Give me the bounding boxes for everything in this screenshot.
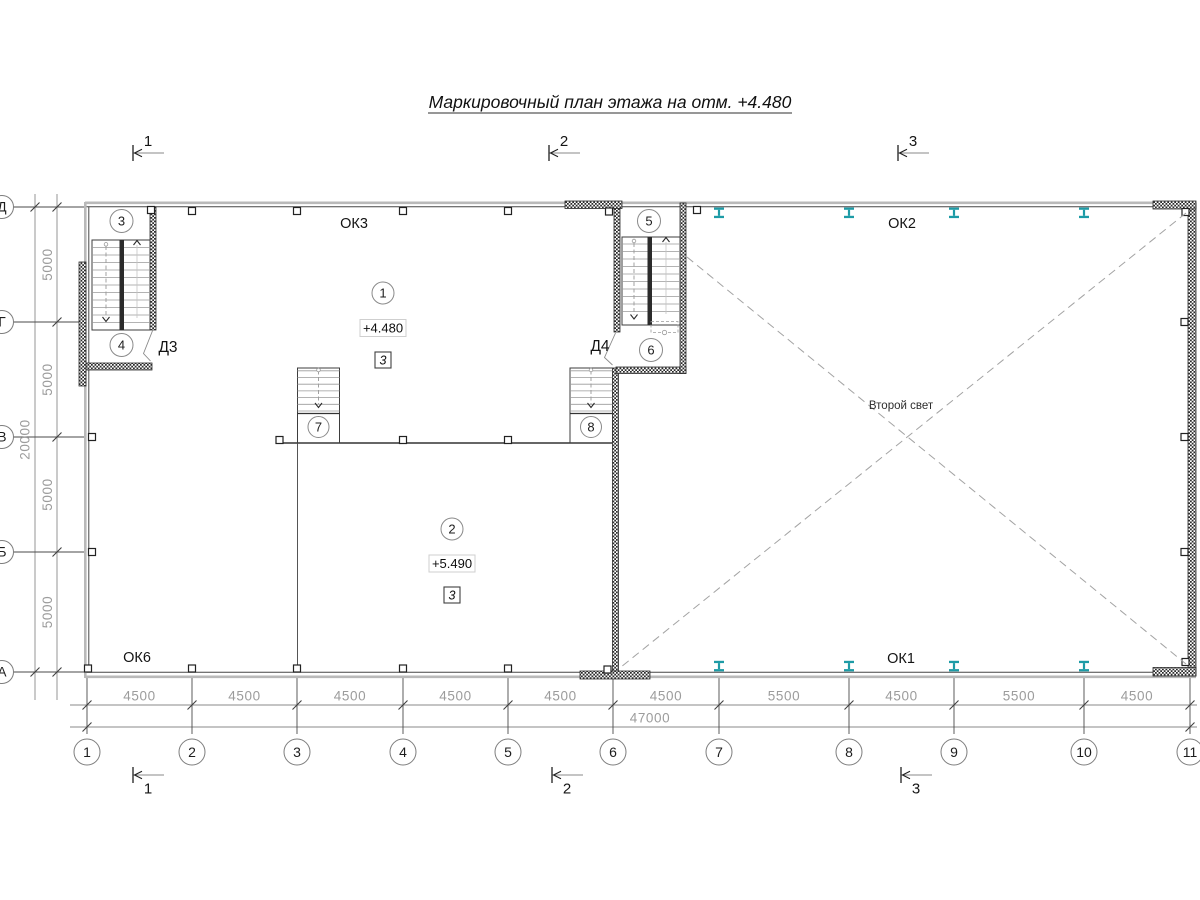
steel-column-flange [844,208,854,210]
dimension-value: 4500 [439,689,471,704]
steel-column-icon [844,661,854,672]
section-mark-label: 1 [144,133,152,150]
void-cross-line [687,257,1186,664]
grid-row-label: В [0,430,7,445]
steel-column-flange [1079,208,1089,210]
column-marker [400,208,407,215]
grid-column-label: 4 [399,744,407,760]
grid-row-label: Б [0,545,7,560]
dimension-value: 5000 [40,478,55,510]
column-marker [148,207,155,214]
window-label: ОК3 [340,216,368,232]
section-mark-label: 3 [909,133,917,150]
column-marker [189,208,196,215]
stair-start-marker [104,243,108,247]
column-marker [694,207,701,214]
load-bearing-wall [580,671,650,679]
void-cross-line [621,213,1186,667]
steel-column-icon [949,661,959,672]
dimension-value: 4500 [885,689,917,704]
load-bearing-wall [614,208,620,332]
column-marker [505,208,512,215]
room-number-label: 1 [379,286,386,301]
column-marker [1181,434,1188,441]
grid-column-label: 1 [83,744,91,760]
type-mark-label: 3 [380,353,387,367]
column-marker [505,665,512,672]
steel-column-flange [714,669,724,671]
steel-column-flange [949,208,959,210]
grid-column-label: 8 [845,744,853,760]
window-label: ОК6 [123,650,151,666]
column-marker [1182,209,1189,216]
stair-mark-label: 3 [118,214,125,229]
elevation-label: +4.480 [363,320,403,335]
stair-start-marker [589,368,593,372]
dimension-value: 4500 [650,689,682,704]
window-label: ОК2 [888,216,916,232]
load-bearing-wall [616,367,686,374]
section-mark-label: 3 [912,781,920,798]
column-marker [505,437,512,444]
load-bearing-wall [86,363,152,370]
steel-column-web [848,663,850,669]
dimension-total-value: 20000 [18,419,33,460]
door-swing [144,330,154,362]
walls-layer [79,201,1196,679]
load-bearing-wall [79,262,86,386]
steel-column-flange [714,216,724,218]
steel-column-web [953,210,955,216]
grid-column-label: 3 [293,744,301,760]
door-label: Д4 [590,338,609,355]
steel-column-icon [949,208,959,219]
column-marker [400,665,407,672]
up-arrow-icon [663,238,670,243]
down-arrow-icon [631,315,638,320]
dimension-value: 4500 [228,689,260,704]
dimension-value: 4500 [334,689,366,704]
steel-column-flange [949,669,959,671]
steel-column-flange [949,661,959,663]
dimension-value: 5500 [1003,689,1035,704]
steel-column-icon [1079,208,1089,219]
stair-landing-marker [662,330,666,334]
stair-mark-label: 6 [647,343,654,358]
grid-row-label: А [0,665,7,680]
steel-column-flange [1079,661,1089,663]
door-label: Д3 [158,339,177,356]
window-label: ОК1 [887,651,915,667]
section-mark-label: 2 [563,781,571,798]
grid-column-label: 10 [1076,744,1092,760]
column-marker [604,666,611,673]
column-marker [89,434,96,441]
grid-column-label: 6 [609,744,617,760]
column-marker [1181,319,1188,326]
stair-divider-wall [648,237,653,325]
steel-column-flange [844,216,854,218]
load-bearing-wall [565,201,622,209]
stair-mark-label: 7 [315,420,322,435]
steel-column-flange [844,669,854,671]
load-bearing-wall [613,368,619,672]
dimension-value: 4500 [1121,689,1153,704]
dimension-value: 5000 [40,596,55,628]
elevation-label: +5.490 [432,556,472,571]
steel-column-flange [714,208,724,210]
load-bearing-wall [1188,203,1196,676]
steel-column-web [848,210,850,216]
steel-column-flange [1079,669,1089,671]
stair-start-marker [317,368,321,372]
floor-plan-canvas: 1234567891011450045004500450045004500550… [0,0,1200,900]
grid-column-label: 11 [1183,744,1198,760]
steel-column-flange [714,661,724,663]
dimension-value: 5000 [40,363,55,395]
column-marker [294,665,301,672]
type-mark-label: 3 [449,588,456,602]
grid-row-label: Г [0,315,6,330]
stair-mark-label: 4 [118,338,125,353]
load-bearing-wall [1153,668,1196,677]
load-bearing-wall [1153,201,1196,209]
column-marker [276,437,283,444]
steel-column-web [718,210,720,216]
drawing-title: Маркировочный план этажа на отм. +4.480 [429,92,792,112]
grid-row-label: Д [0,200,7,215]
steel-column-flange [1079,216,1089,218]
grid-column-label: 5 [504,744,512,760]
steel-column-flange [844,661,854,663]
column-marker [85,665,92,672]
steel-column-icon [714,208,724,219]
steel-column-web [1083,210,1085,216]
dimension-value: 5000 [40,248,55,280]
section-mark-label: 2 [560,133,568,150]
steel-column-icon [844,208,854,219]
steel-column-web [953,663,955,669]
column-marker [1181,549,1188,556]
dimension-value: 5500 [768,689,800,704]
steel-column-web [1083,663,1085,669]
stair-mark-label: 8 [587,420,594,435]
stair-divider-wall [120,240,125,330]
column-marker [606,208,613,215]
column-marker [89,549,96,556]
steel-column-icon [714,661,724,672]
load-bearing-wall [150,207,156,330]
dimension-value: 4500 [123,689,155,704]
up-arrow-icon [134,241,141,246]
drawing-sheet: 1234567891011450045004500450045004500550… [0,0,1200,900]
steel-column-flange [949,216,959,218]
steel-column-web [718,663,720,669]
column-marker [294,208,301,215]
column-marker [400,437,407,444]
stair-start-marker [632,239,636,243]
second-light-label: Второй свет [869,400,934,412]
section-mark-label: 1 [144,781,152,798]
steel-column-icon [1079,661,1089,672]
room-number-label: 2 [448,522,455,537]
grid-column-label: 7 [715,744,723,760]
load-bearing-wall [680,203,686,374]
grid-column-label: 2 [188,744,196,760]
dimension-value: 4500 [544,689,576,704]
grid-column-label: 9 [950,744,958,760]
column-marker [189,665,196,672]
dimension-total-value: 47000 [630,711,671,726]
stair-mark-label: 5 [645,214,652,229]
